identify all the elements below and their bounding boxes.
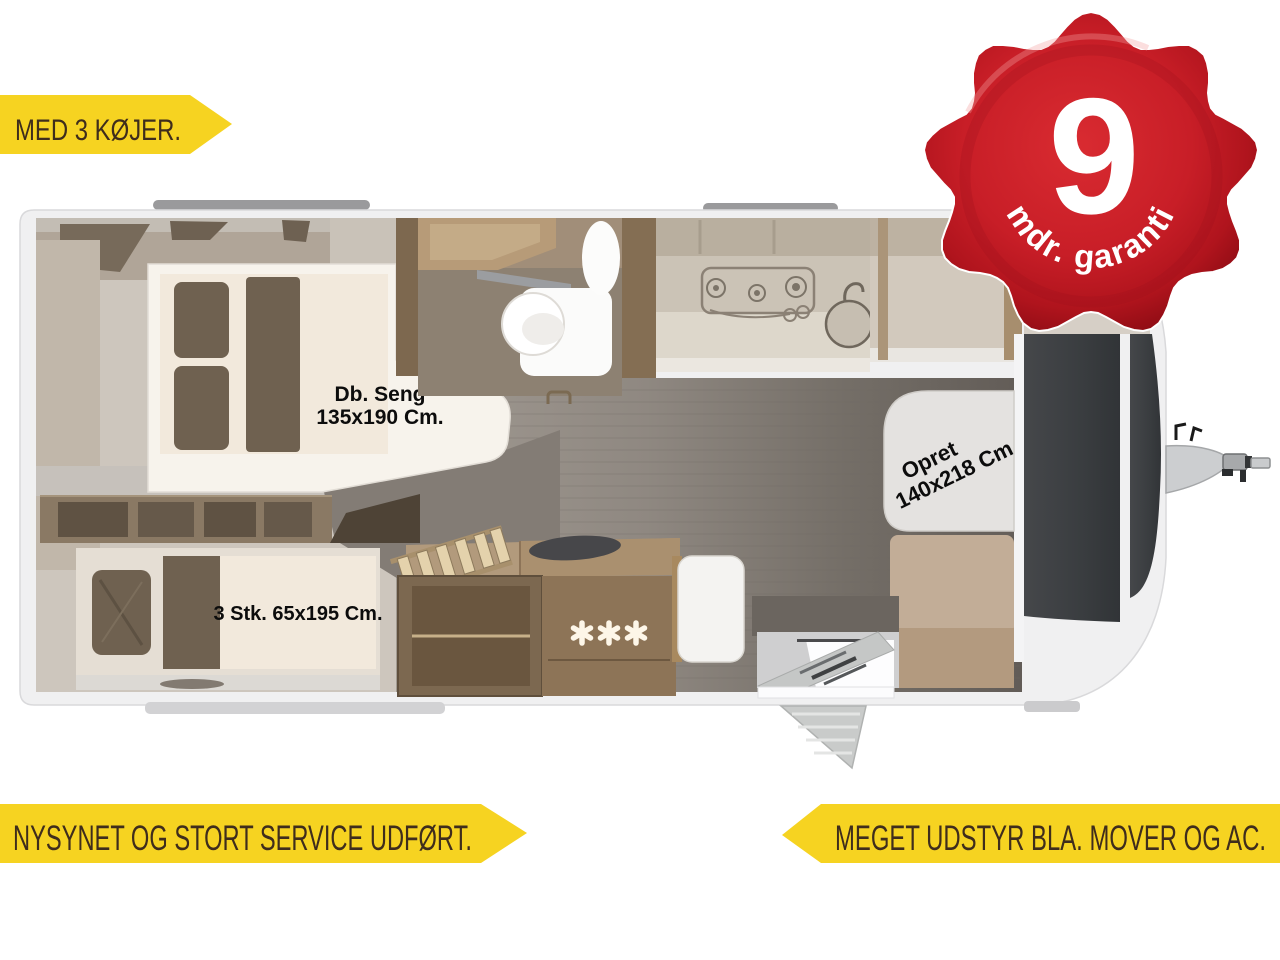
svg-text:9: 9	[1048, 64, 1140, 248]
svg-text:NYSYNET OG STORT SERVICE UDFØR: NYSYNET OG STORT SERVICE UDFØRT.	[13, 819, 472, 858]
svg-text:3 Stk. 65x195 Cm.: 3 Stk. 65x195 Cm.	[214, 603, 383, 625]
svg-text:MEGET UDSTYR BLA. MOVER OG AC.: MEGET UDSTYR BLA. MOVER OG AC.	[835, 819, 1266, 858]
svg-text:135x190 Cm.: 135x190 Cm.	[316, 406, 443, 429]
svg-text:Db. Seng: Db. Seng	[334, 383, 425, 406]
svg-text:MED 3 KØJER.: MED 3 KØJER.	[15, 114, 181, 147]
